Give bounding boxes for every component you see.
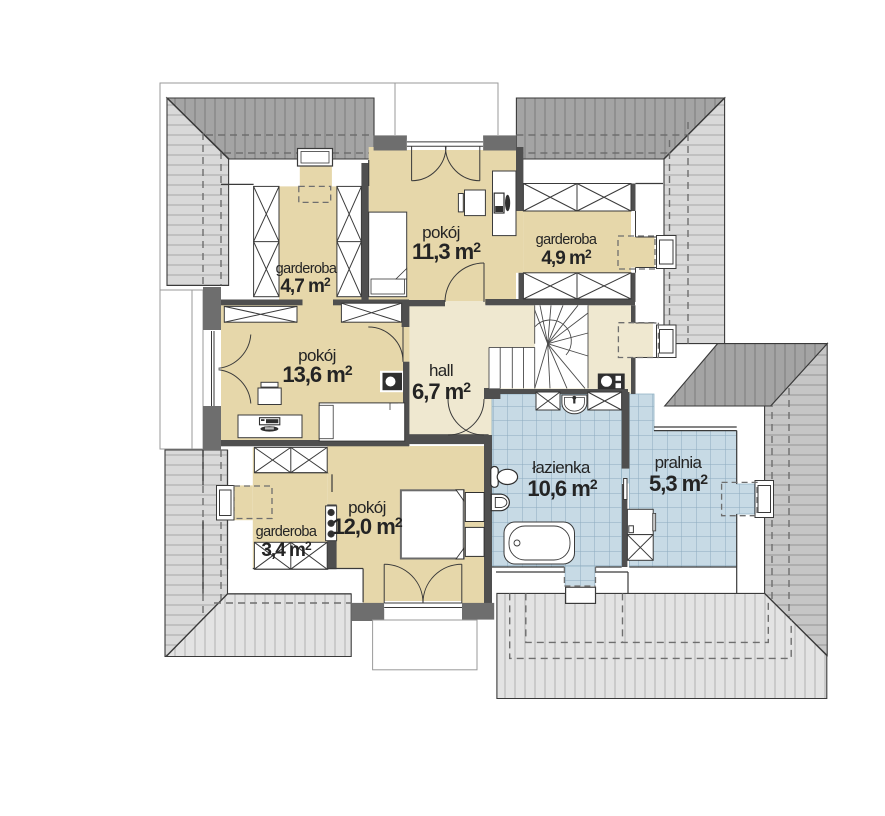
svg-text:garderoba: garderoba (536, 232, 598, 248)
svg-text:garderoba: garderoba (256, 524, 318, 540)
svg-text:13,6 m2: 13,6 m2 (282, 362, 353, 387)
svg-text:12,0 m2: 12,0 m2 (332, 514, 403, 539)
svg-text:4,9 m2: 4,9 m2 (541, 247, 592, 269)
svg-text:11,3 m2: 11,3 m2 (412, 239, 481, 264)
svg-text:6,7 m2: 6,7 m2 (412, 379, 471, 404)
svg-text:hall: hall (429, 361, 453, 380)
svg-text:10,6 m2: 10,6 m2 (527, 476, 598, 501)
svg-text:4,7 m2: 4,7 m2 (280, 275, 331, 297)
svg-text:łazienka: łazienka (532, 458, 591, 477)
svg-text:5,3 m2: 5,3 m2 (649, 471, 708, 496)
svg-text:3,4 m2: 3,4 m2 (261, 539, 312, 561)
svg-text:pralnia: pralnia (655, 453, 703, 472)
